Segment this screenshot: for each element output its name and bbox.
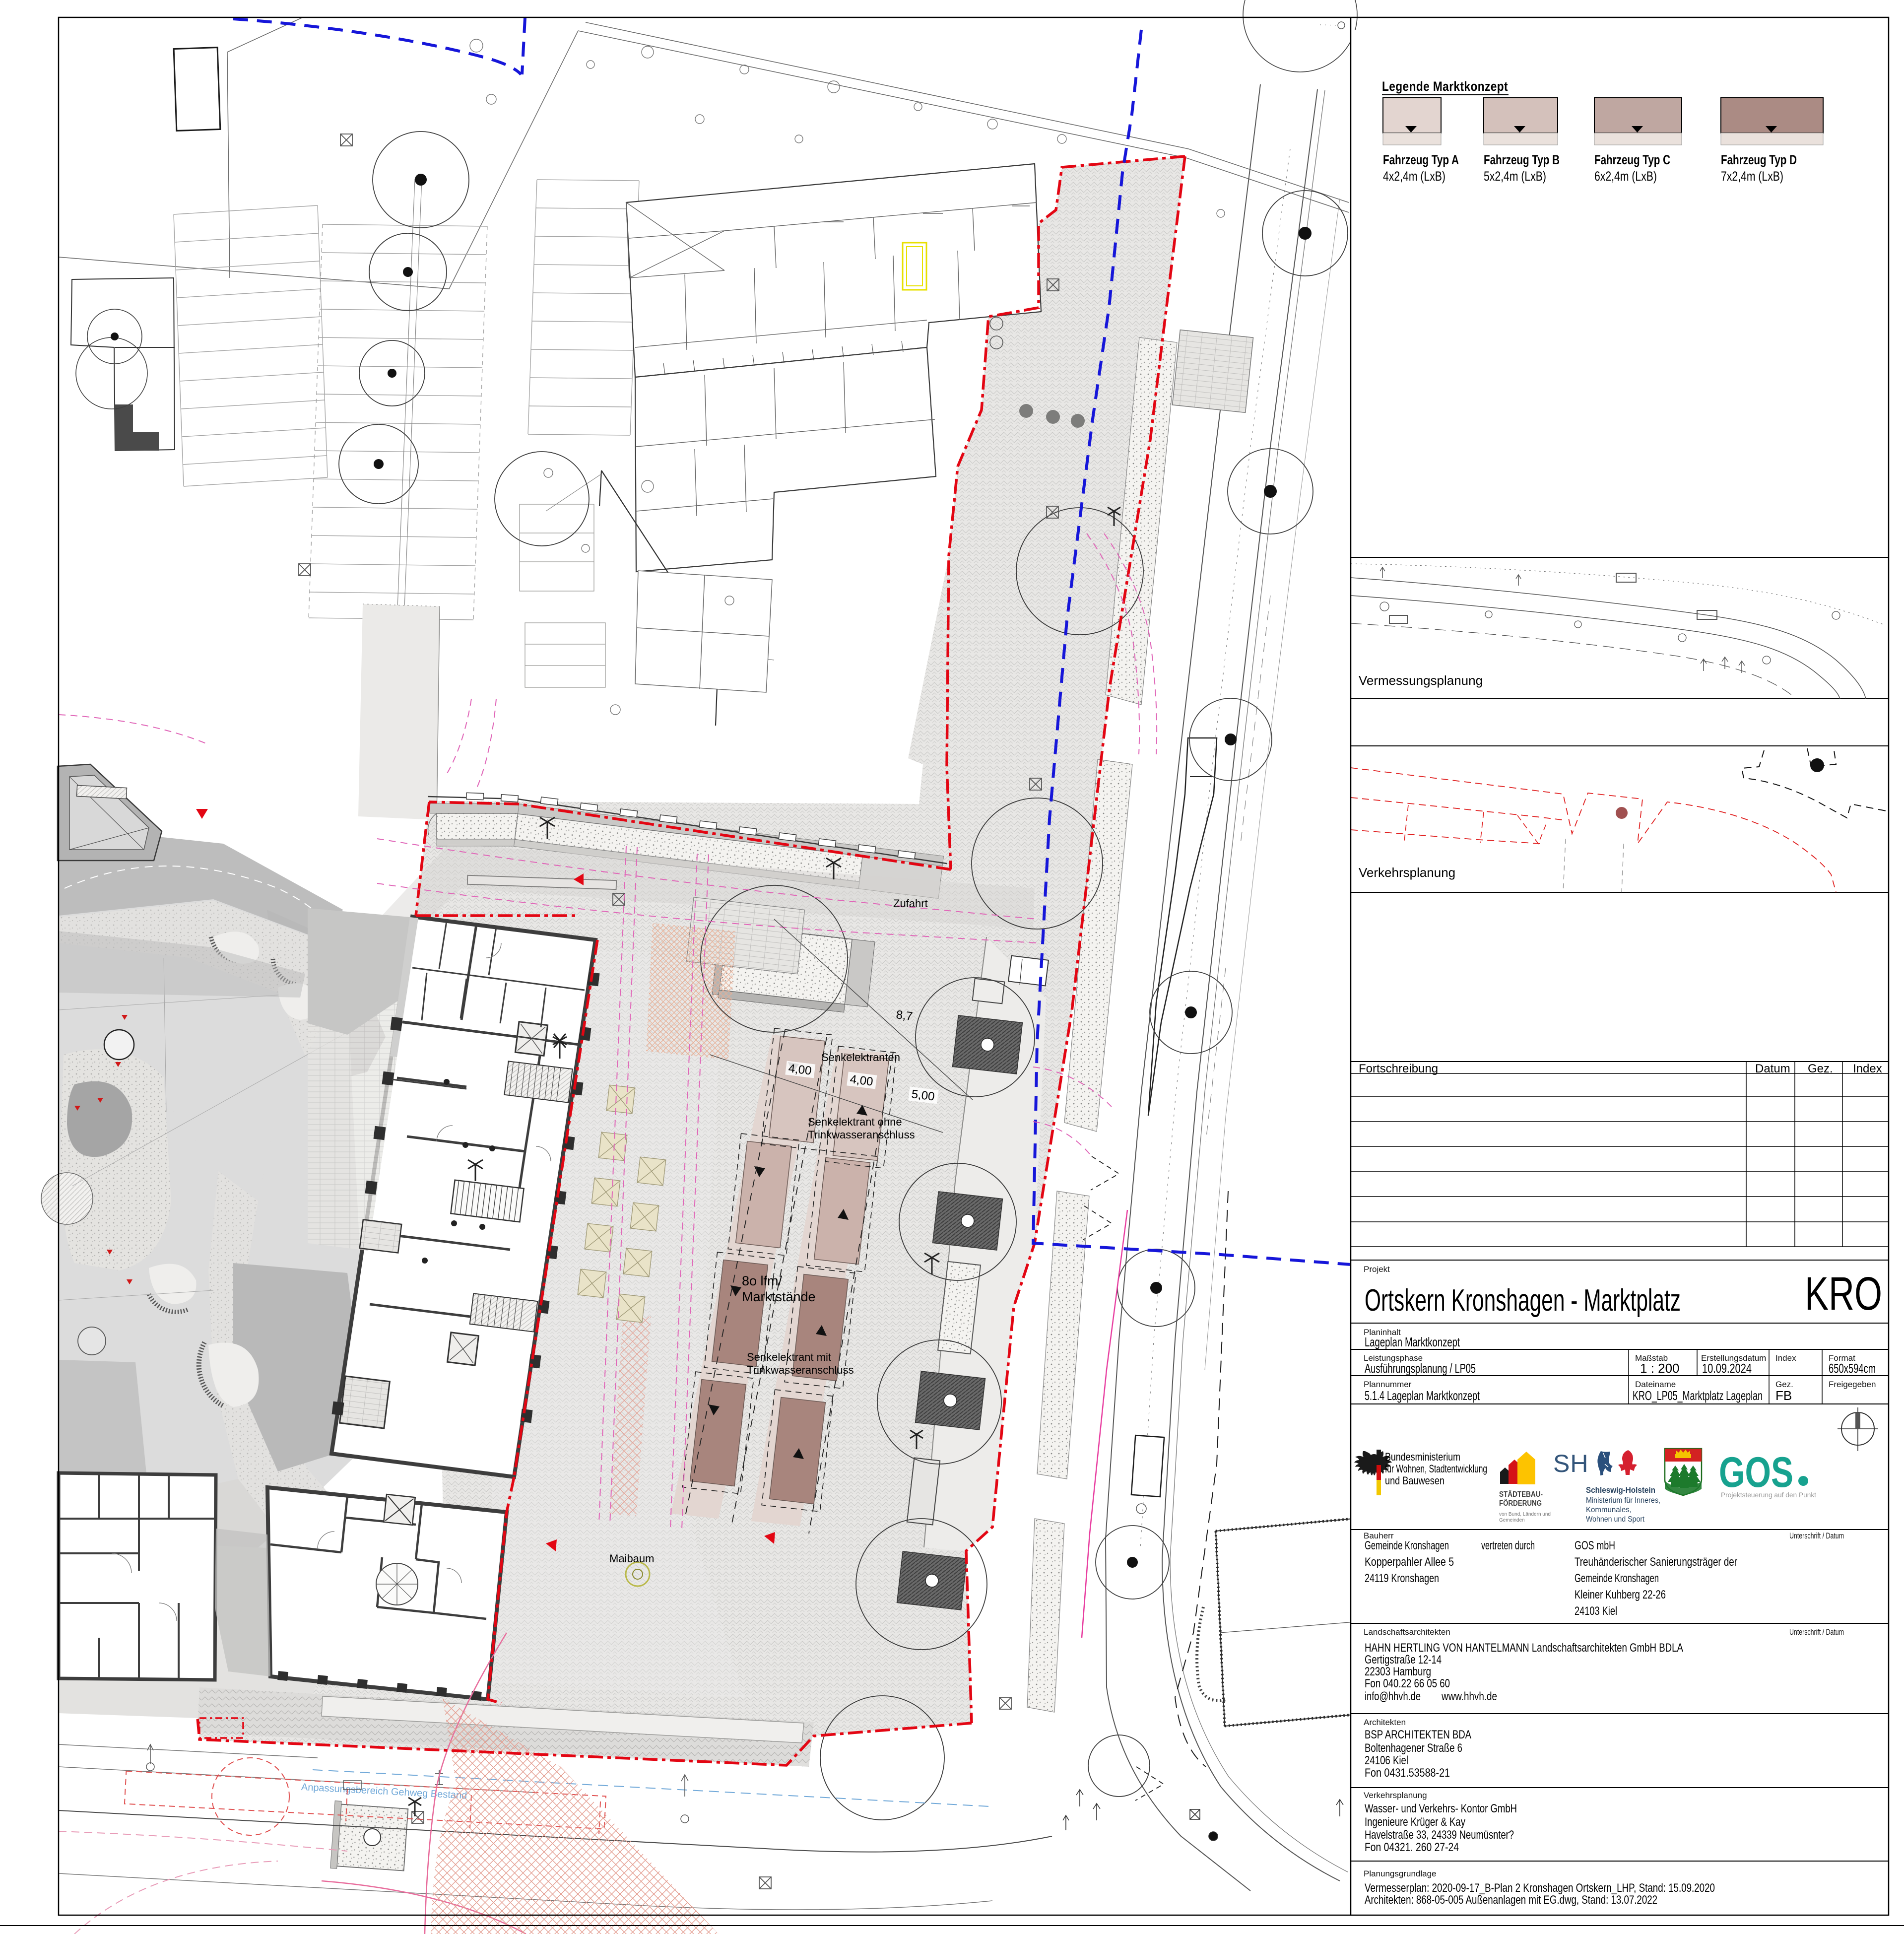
svg-text:Trinkwasseranschluss: Trinkwasseranschluss [808, 1129, 915, 1141]
svg-text:5x2,4m (LxB): 5x2,4m (LxB) [1484, 169, 1546, 184]
svg-text:Fortschreibung: Fortschreibung [1359, 1062, 1438, 1075]
svg-text:24119 Kronshagen: 24119 Kronshagen [1365, 1572, 1439, 1585]
svg-text:Vermesserplan: 2020-09-17_B-Pl: Vermesserplan: 2020-09-17_B-Plan 2 Krons… [1365, 1881, 1715, 1895]
svg-text:Ortskern Kronshagen - Marktpla: Ortskern Kronshagen - Marktplatz [1365, 1283, 1681, 1318]
svg-text:Maibaum: Maibaum [609, 1552, 654, 1565]
svg-text:4,00: 4,00 [788, 1062, 812, 1077]
svg-text:Index: Index [1853, 1062, 1882, 1075]
svg-text:FÖRDERUNG: FÖRDERUNG [1499, 1498, 1542, 1508]
svg-text:Fon 0431.53588-21: Fon 0431.53588-21 [1365, 1766, 1450, 1780]
svg-text:Fon 04321. 260 27-24: Fon 04321. 260 27-24 [1365, 1841, 1459, 1854]
svg-text:und Bauwesen: und Bauwesen [1385, 1474, 1444, 1487]
svg-text:Verkehrsplanung: Verkehrsplanung [1359, 865, 1455, 880]
svg-text:Senkelektrant ohne: Senkelektrant ohne [808, 1116, 902, 1128]
svg-text:Ministerium für Inneres,: Ministerium für Inneres, [1586, 1496, 1660, 1505]
svg-text:Boltenhagener Straße 6: Boltenhagener Straße 6 [1365, 1741, 1462, 1755]
svg-text:KRO_LP05_Marktplatz Lageplan: KRO_LP05_Marktplatz Lageplan [1633, 1388, 1763, 1403]
svg-text:Projektsteuerung auf den Punkt: Projektsteuerung auf den Punkt [1721, 1491, 1816, 1499]
svg-text:8o lfm/: 8o lfm/ [742, 1273, 783, 1288]
svg-text:Kopperpahler Allee 5: Kopperpahler Allee 5 [1365, 1555, 1454, 1569]
svg-text:Unterschrift / Datum: Unterschrift / Datum [1789, 1627, 1844, 1637]
svg-text:Fahrzeug Typ D: Fahrzeug Typ D [1721, 152, 1797, 167]
svg-text:info@hhvh.de: info@hhvh.de [1365, 1690, 1421, 1703]
svg-text:24103 Kiel: 24103 Kiel [1575, 1604, 1617, 1618]
svg-text:Fahrzeug Typ B: Fahrzeug Typ B [1484, 152, 1560, 167]
svg-text:HAHN HERTLING VON HANTELMANN L: HAHN HERTLING VON HANTELMANN Landschafts… [1365, 1641, 1683, 1655]
svg-text:Schleswig-Holstein: Schleswig-Holstein [1586, 1485, 1655, 1495]
svg-text:Fon 040.22 66 05 60: Fon 040.22 66 05 60 [1365, 1677, 1450, 1690]
svg-text:Freigegeben: Freigegeben [1829, 1380, 1876, 1389]
svg-text:Verkehrsplanung: Verkehrsplanung [1364, 1791, 1427, 1800]
svg-text:Lageplan Marktkonzept: Lageplan Marktkonzept [1365, 1334, 1460, 1349]
svg-text:Wohnen und Sport: Wohnen und Sport [1586, 1515, 1644, 1524]
svg-text:Gemeinden: Gemeinden [1499, 1518, 1525, 1523]
svg-text:Architekten: Architekten [1364, 1718, 1406, 1727]
svg-text:Wasser- und Verkehrs- Kontor G: Wasser- und Verkehrs- Kontor GmbH [1365, 1802, 1517, 1815]
svg-text:www.hhvh.de: www.hhvh.de [1441, 1690, 1497, 1703]
svg-text:Fahrzeug Typ C: Fahrzeug Typ C [1594, 152, 1670, 167]
svg-text:GOS: GOS [1719, 1449, 1793, 1496]
svg-text:Senkelektranten: Senkelektranten [821, 1051, 900, 1064]
svg-text:Treuhänderischer Sanierungsträ: Treuhänderischer Sanierungsträger der [1575, 1555, 1737, 1569]
svg-text:Gertigstraße 12-14: Gertigstraße 12-14 [1365, 1653, 1442, 1667]
svg-text:Gemeinde Kronshagen: Gemeinde Kronshagen [1365, 1539, 1449, 1552]
svg-text:Landschaftsarchitekten: Landschaftsarchitekten [1364, 1627, 1450, 1637]
svg-text:24106 Kiel: 24106 Kiel [1365, 1754, 1408, 1767]
svg-text:22303 Hamburg: 22303 Hamburg [1365, 1665, 1431, 1678]
svg-text:Kommunales,: Kommunales, [1586, 1506, 1632, 1514]
svg-text:Index: Index [1775, 1353, 1796, 1363]
svg-text:8,7: 8,7 [895, 1008, 913, 1023]
svg-text:GOS mbH: GOS mbH [1575, 1539, 1615, 1552]
svg-text:Gez.: Gez. [1808, 1062, 1833, 1075]
svg-text:Trinkwasseranschluss: Trinkwasseranschluss [747, 1364, 854, 1376]
svg-text:7x2,4m (LxB): 7x2,4m (LxB) [1721, 169, 1783, 184]
svg-text:Projekt: Projekt [1364, 1265, 1390, 1274]
svg-text:Kleiner Kuhberg 22-26: Kleiner Kuhberg 22-26 [1575, 1588, 1666, 1601]
svg-text:Havelstraße 33, 24339 Neumüsnt: Havelstraße 33, 24339 Neumüsnter? [1365, 1828, 1514, 1842]
svg-text:650x594cm: 650x594cm [1829, 1361, 1876, 1376]
svg-text:6x2,4m (LxB): 6x2,4m (LxB) [1594, 169, 1657, 184]
svg-text:Unterschrift / Datum: Unterschrift / Datum [1789, 1531, 1844, 1540]
svg-text:Bundesministerium: Bundesministerium [1385, 1451, 1460, 1463]
svg-text:Senkelektrant mit: Senkelektrant mit [747, 1351, 831, 1363]
svg-text:Marktstände: Marktstände [742, 1289, 816, 1304]
svg-text:Planungsgrundlage: Planungsgrundlage [1364, 1869, 1437, 1878]
svg-text:FB: FB [1775, 1388, 1792, 1403]
svg-text:SH: SH [1553, 1450, 1588, 1477]
svg-text:Ingenieure Krüger & Kay: Ingenieure Krüger & Kay [1365, 1815, 1465, 1829]
svg-text:Vermessungsplanung: Vermessungsplanung [1359, 673, 1483, 688]
svg-text:Fahrzeug Typ A: Fahrzeug Typ A [1383, 152, 1459, 167]
svg-text:4x2,4m (LxB): 4x2,4m (LxB) [1383, 169, 1445, 184]
svg-text:4,00: 4,00 [849, 1072, 874, 1088]
svg-text:10.09.2024: 10.09.2024 [1702, 1361, 1752, 1376]
svg-text:Ausführungsplanung / LP05: Ausführungsplanung / LP05 [1365, 1361, 1476, 1376]
svg-text:Legende Marktkonzept: Legende Marktkonzept [1382, 79, 1508, 94]
svg-text:Zufahrt: Zufahrt [893, 897, 928, 910]
svg-text:BSP ARCHITEKTEN BDA: BSP ARCHITEKTEN BDA [1365, 1728, 1471, 1741]
svg-text:Architekten: 868-05-005 Außena: Architekten: 868-05-005 Außenanlagen mit… [1365, 1893, 1657, 1907]
svg-text:5.1.4 Lageplan Marktkonzept: 5.1.4 Lageplan Marktkonzept [1365, 1388, 1480, 1403]
svg-text:KRO: KRO [1805, 1267, 1882, 1320]
svg-text:Gemeinde Kronshagen: Gemeinde Kronshagen [1575, 1572, 1659, 1585]
svg-text:für Wohnen, Stadtentwicklung: für Wohnen, Stadtentwicklung [1385, 1463, 1487, 1475]
svg-text:1 : 200: 1 : 200 [1640, 1361, 1680, 1376]
svg-text:Datum: Datum [1755, 1062, 1790, 1075]
svg-text:vertreten durch: vertreten durch [1481, 1539, 1535, 1552]
svg-text:STÄDTEBAU-: STÄDTEBAU- [1499, 1490, 1543, 1499]
svg-text:5,00: 5,00 [911, 1087, 935, 1103]
svg-text:von Bund, Ländern und: von Bund, Ländern und [1499, 1512, 1551, 1517]
